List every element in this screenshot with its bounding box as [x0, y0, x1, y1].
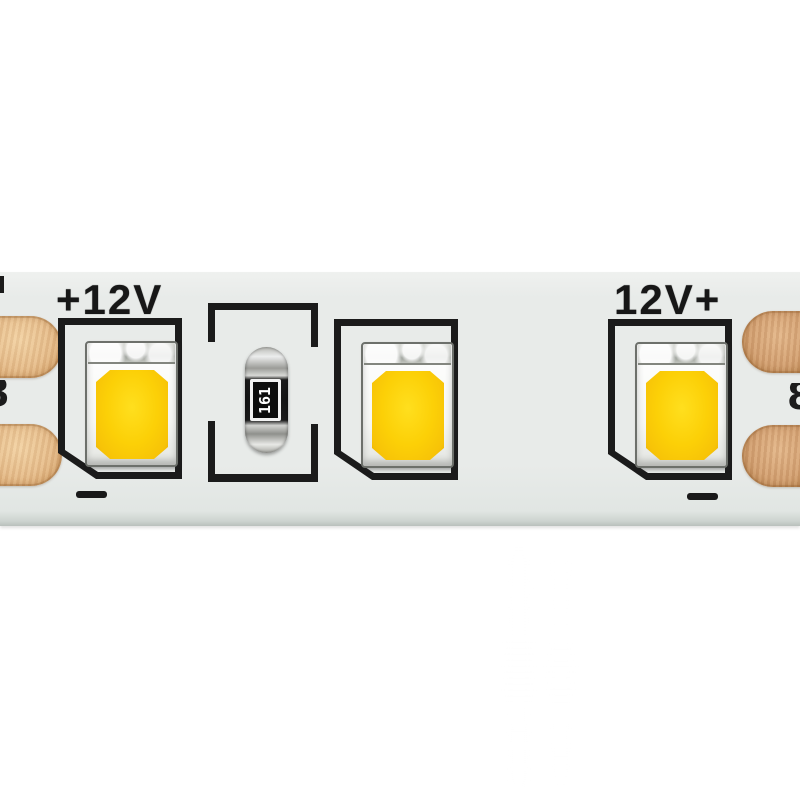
led-module-3: [608, 319, 732, 480]
resistor-silkscreen-bracket: [208, 303, 215, 342]
led-phosphor-window: [372, 371, 444, 460]
solder-pad-left-top: [0, 316, 62, 378]
solder-pad-right-bottom: [742, 425, 800, 487]
led-solder-edge: [88, 343, 175, 364]
led-strip-photo: 8 8 +12V 12V+ 161: [0, 0, 800, 800]
polarity-label-right: 12V+: [614, 279, 721, 321]
resistor-silkscreen-bracket: [208, 421, 215, 481]
resistor-silkscreen-bracket: [311, 303, 318, 347]
resistor-code-label: 161: [250, 379, 281, 421]
polarity-label-left: +12V: [56, 279, 163, 321]
pcb-reflection-streak: [506, 550, 532, 790]
cut-mark-glyph-left: 8: [0, 380, 24, 416]
led-phosphor-window: [646, 371, 718, 460]
led-package: [85, 341, 178, 467]
minus-polarity-mark-left: [76, 491, 107, 498]
led-package: [635, 342, 728, 468]
minus-polarity-mark-right: [687, 493, 718, 500]
cut-mark-glyph-right: 8: [787, 383, 800, 419]
led-module-1: [58, 318, 182, 479]
resistor-silkscreen-bracket: [311, 424, 318, 481]
led-solder-edge: [364, 344, 451, 365]
solder-pad-left-bottom: [0, 424, 62, 486]
pcb-reflection-streak: [548, 556, 574, 784]
led-package: [361, 342, 454, 468]
pcb-edge-tick-mark: [0, 276, 4, 293]
led-module-2: [334, 319, 458, 480]
resistor-silkscreen-bracket: [208, 303, 318, 310]
led-solder-edge: [638, 344, 725, 365]
resistor-code-text: 161: [258, 386, 273, 413]
cut-mark-glyph-right-text: 8: [787, 383, 800, 415]
cut-mark-glyph-left-text: 8: [0, 380, 9, 412]
resistor-silkscreen-bracket: [208, 474, 318, 482]
led-phosphor-window: [96, 370, 168, 459]
solder-pad-right-top: [742, 311, 800, 373]
